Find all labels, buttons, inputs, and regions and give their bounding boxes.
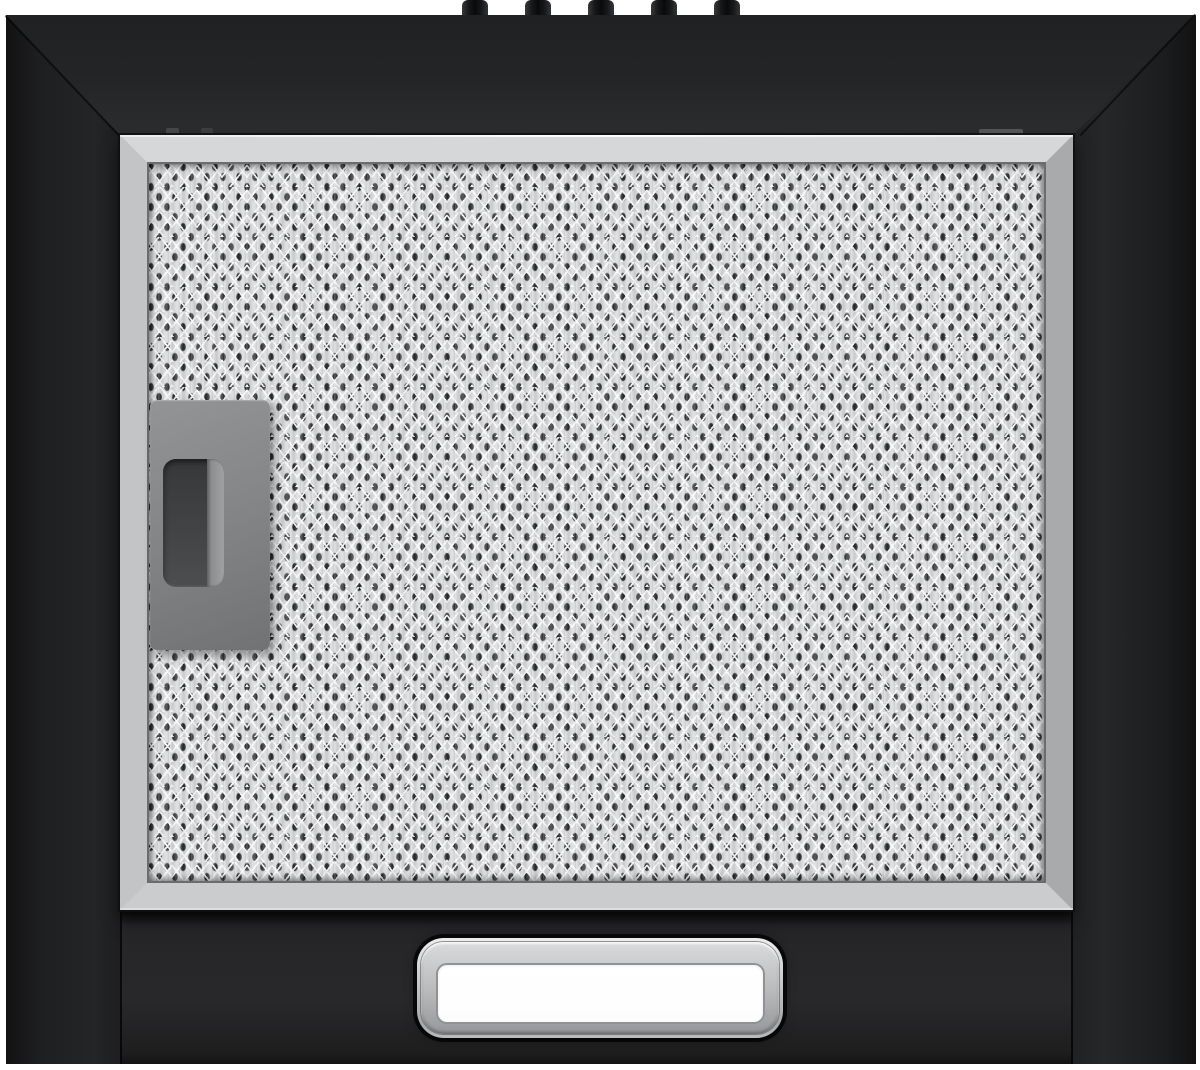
- panel-seam-right: [1071, 912, 1073, 1064]
- hood-frame-right: [1073, 15, 1196, 1064]
- light-bezel: [421, 942, 779, 1034]
- clip-handle-lip: [207, 459, 224, 587]
- clip-handle-recess: [163, 459, 224, 587]
- product-image: [0, 0, 1200, 1070]
- light-diffuser: [438, 965, 763, 1022]
- light-assembly: [417, 938, 783, 1038]
- hood-frame-top: [6, 15, 1196, 135]
- filter-release-clip[interactable]: [150, 400, 270, 650]
- hood-frame-left: [6, 15, 120, 1064]
- panel-seam-left: [120, 912, 122, 1064]
- grease-filter-mesh: [147, 162, 1046, 883]
